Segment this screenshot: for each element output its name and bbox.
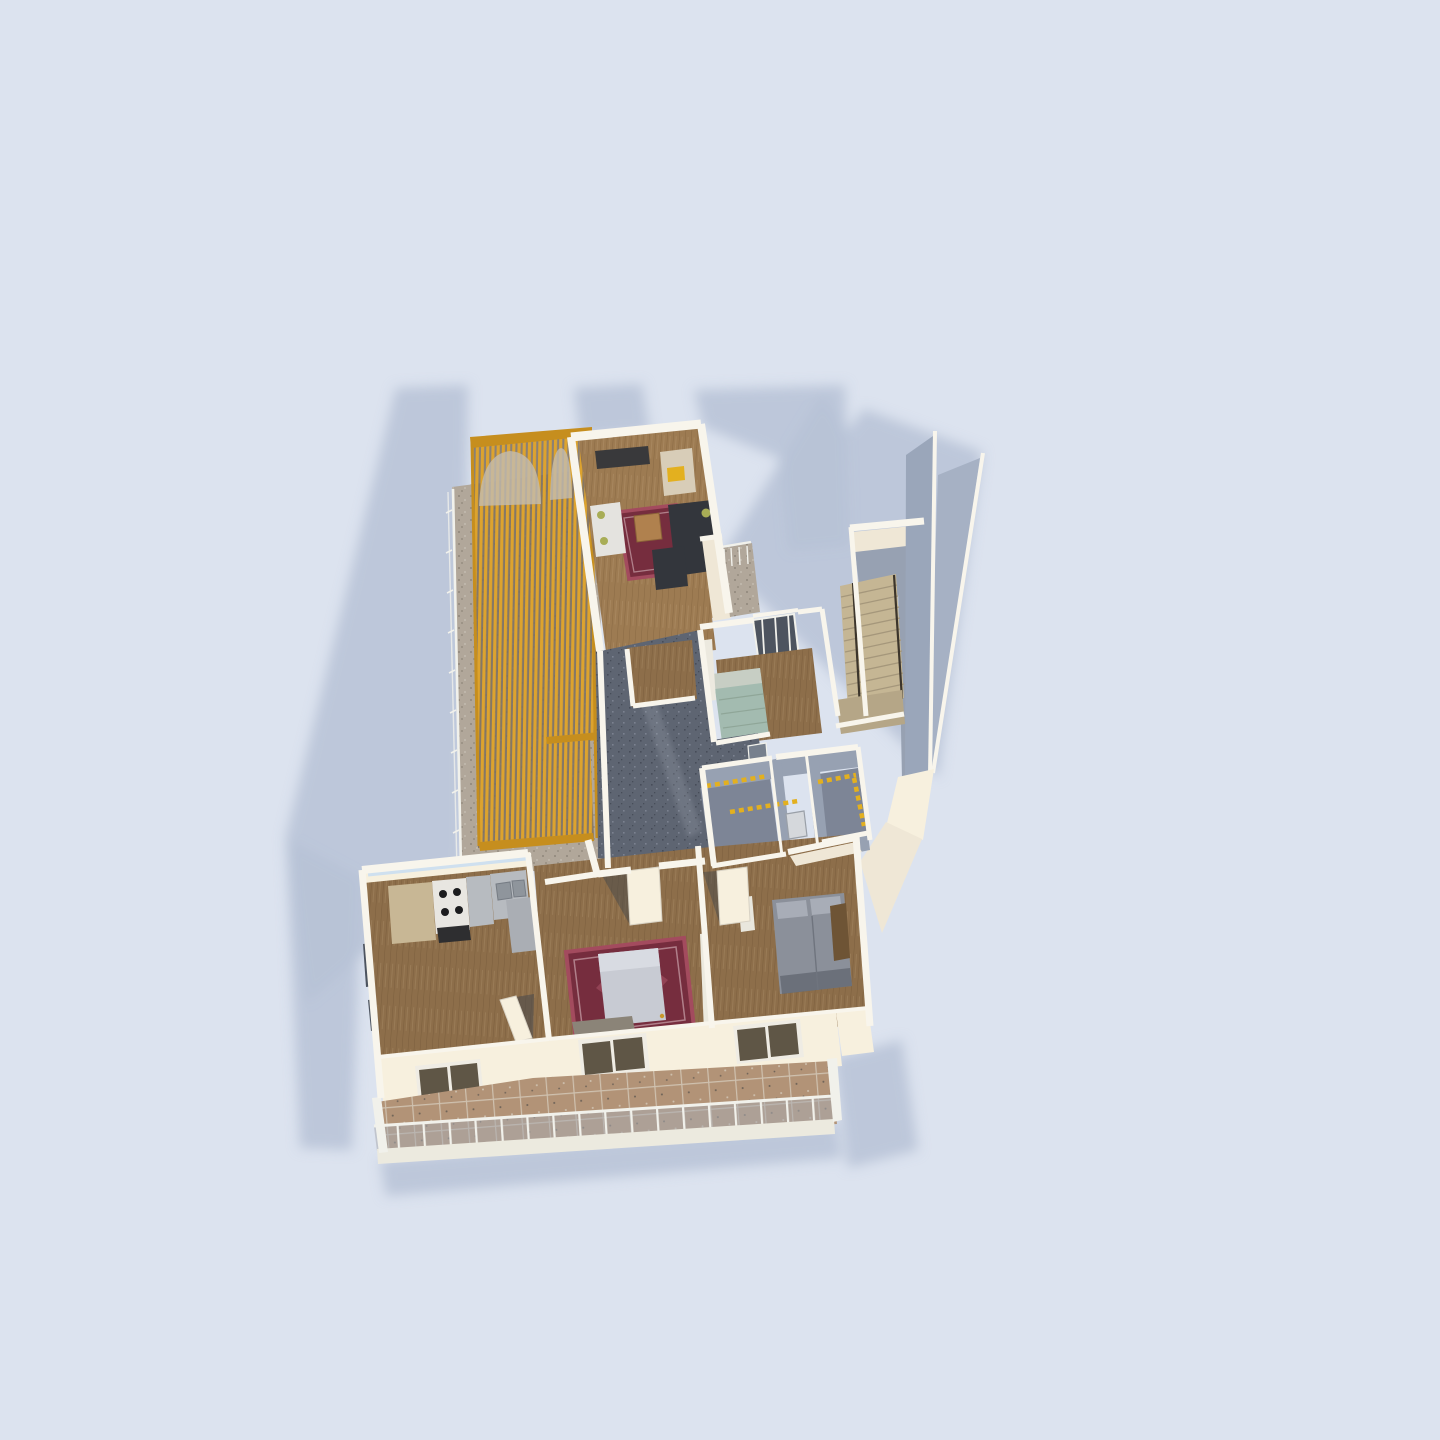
burner-2	[453, 888, 461, 896]
cap-lightwell-north	[700, 536, 722, 539]
kitchen-tall-cabinet	[388, 882, 436, 944]
cap-window-east	[798, 609, 822, 612]
kitchen	[362, 852, 547, 1058]
door-glass-3b	[768, 1023, 799, 1057]
burner-4	[455, 906, 463, 914]
armchair	[590, 502, 626, 557]
armchair-pillow-2	[600, 537, 608, 545]
door-glass-3a	[737, 1027, 768, 1061]
sink-basin-2	[512, 880, 526, 897]
floorplan-render	[0, 0, 1440, 1440]
toilet	[786, 811, 807, 839]
counter-mid	[466, 875, 494, 927]
door-leaf-right	[717, 867, 750, 925]
cap-bedm-north	[598, 870, 631, 874]
door-leaf-middle	[627, 867, 662, 925]
door-glass-2a	[582, 1041, 613, 1075]
sink-basin-1	[496, 882, 512, 900]
burner-3	[441, 908, 449, 916]
oven-front	[437, 925, 471, 943]
balcony-west-pergola	[446, 427, 608, 876]
render-stage	[0, 0, 1440, 1440]
bed-leg-2	[660, 1014, 664, 1018]
sliding-door-right	[733, 1019, 804, 1064]
coffee-table	[634, 513, 662, 542]
sofa-chaise	[652, 546, 688, 590]
media-shelf-drawer	[667, 466, 685, 482]
door-glass-2b	[613, 1037, 645, 1071]
bed-right-pillow-1	[776, 900, 808, 919]
burner-1	[439, 890, 447, 898]
sofa-pillow-1	[702, 509, 711, 518]
armchair-pillow-1	[597, 511, 605, 519]
